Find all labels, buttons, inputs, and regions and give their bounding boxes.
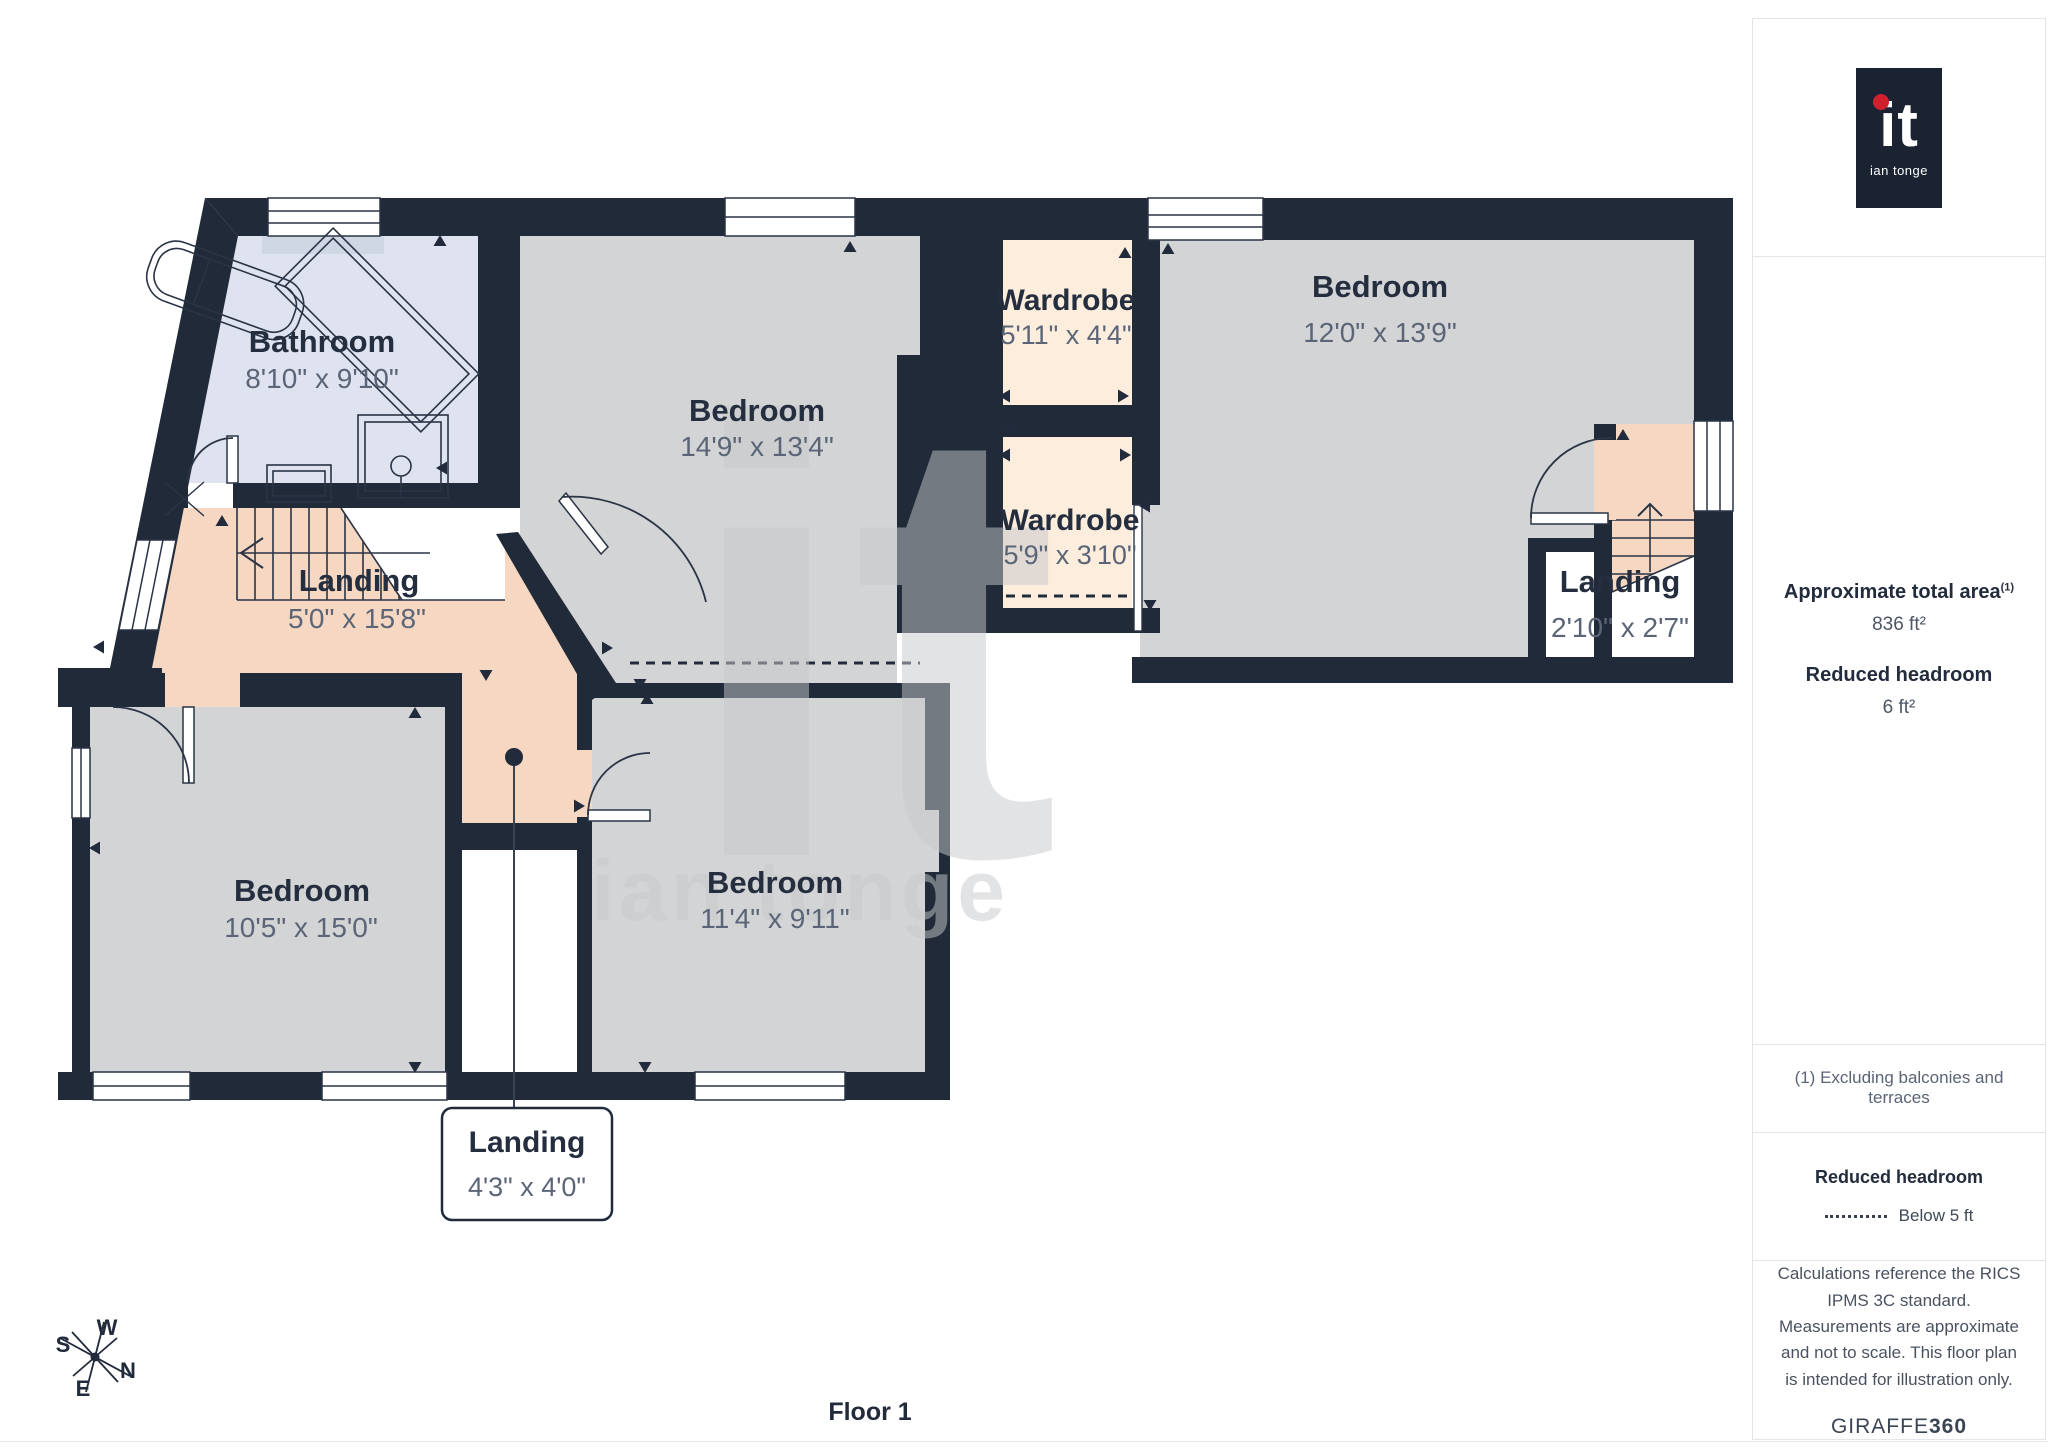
doorway-strip xyxy=(1140,505,1160,657)
label-bedroom-left: Bedroom xyxy=(234,873,370,908)
info-sidebar: it ian tonge Approximate total area(1) 8… xyxy=(1752,18,2046,1440)
brand-number: 360 xyxy=(1929,1415,1967,1438)
total-area-title-text: Approximate total area xyxy=(1784,581,2001,603)
window-bathroom-top xyxy=(268,198,380,236)
floor-label: Floor 1 xyxy=(828,1398,911,1426)
total-area-title: Approximate total area(1) xyxy=(1784,581,2014,604)
window-bedroom-left-side xyxy=(72,748,90,818)
dims-wardrobe-a: 5'11" x 4'4" xyxy=(1000,320,1131,350)
legend-item-label: Below 5 ft xyxy=(1899,1206,1974,1226)
label-bedroom-mid: Bedroom xyxy=(707,865,843,900)
label-bathroom: Bathroom xyxy=(249,324,395,359)
dims-landing-small: 4'3" x 4'0" xyxy=(468,1172,586,1202)
total-area-value: 836 ft² xyxy=(1872,614,1926,636)
logo-red-dot-icon xyxy=(1873,94,1889,110)
brand-name: GIRAFFE xyxy=(1831,1415,1929,1438)
label-landing-main: Landing xyxy=(299,563,420,598)
label-bedroom-main: Bedroom xyxy=(689,393,825,428)
dims-bedroom-mid: 11'4" x 9'11" xyxy=(700,903,849,934)
headroom-title: Reduced headroom xyxy=(1806,664,1993,687)
label-bedroom-right: Bedroom xyxy=(1312,269,1448,304)
dims-bedroom-right: 12'0" x 13'9" xyxy=(1303,317,1457,348)
floorplan-page: it ian tonge Bathroom 8'10" x 9'10" Bedr… xyxy=(0,0,2048,1448)
legend-title: Reduced headroom xyxy=(1815,1167,1983,1188)
dims-bathroom: 8'10" x 9'10" xyxy=(245,363,399,394)
label-wardrobe-b: Wardrobe xyxy=(1001,504,1140,537)
footnote-section: (1) Excluding balconies and terraces xyxy=(1753,1044,2045,1133)
window-bedroom-right-top xyxy=(1148,198,1263,240)
label-wardrobe-a: Wardrobe xyxy=(997,284,1136,317)
disclaimer-text: Calculations reference the RICS IPMS 3C … xyxy=(1775,1261,2023,1393)
label-landing-right: Landing xyxy=(1560,564,1681,599)
dims-bedroom-left: 10'5" x 15'0" xyxy=(224,912,378,943)
dotted-line-icon xyxy=(1825,1215,1887,1218)
dims-landing-right: 2'10" x 2'7" xyxy=(1551,612,1689,643)
total-area-note-marker: (1) xyxy=(2001,582,2014,594)
agency-logo: it ian tonge xyxy=(1856,68,1942,208)
compass-w: W xyxy=(97,1315,118,1340)
window-right-wall xyxy=(1694,421,1733,511)
window-bedroom-main-top xyxy=(725,198,855,236)
window-bedroom-mid-bottom xyxy=(695,1072,845,1100)
dims-landing-main: 5'0" x 15'8" xyxy=(288,603,426,634)
logo-section: it ian tonge xyxy=(1753,19,2045,256)
logo-name: ian tonge xyxy=(1870,163,1928,178)
area-section: Approximate total area(1) 836 ft² Reduce… xyxy=(1753,256,2045,1043)
dims-wardrobe-b: 5'9" x 3'10" xyxy=(1003,540,1136,570)
bottom-divider xyxy=(0,1441,2048,1442)
legend-section: Reduced headroom Below 5 ft xyxy=(1753,1132,2045,1260)
headroom-value: 6 ft² xyxy=(1883,697,1916,719)
footnote-text: (1) Excluding balconies and terraces xyxy=(1753,1068,2045,1108)
window-bedroom-left-bottom-2 xyxy=(322,1072,447,1100)
compass-n: N xyxy=(120,1358,136,1383)
window-bedroom-left-bottom-1 xyxy=(93,1072,190,1100)
brand-mark: GIRAFFE360 xyxy=(1831,1415,1967,1439)
compass-e: E xyxy=(76,1376,91,1401)
label-landing-small: Landing xyxy=(469,1126,586,1159)
disclaimer-section: Calculations reference the RICS IPMS 3C … xyxy=(1753,1260,2045,1439)
compass-s: S xyxy=(56,1332,71,1357)
floorplan-canvas: it ian tonge Bathroom 8'10" x 9'10" Bedr… xyxy=(0,0,2048,1448)
dims-bedroom-main: 14'9" x 13'4" xyxy=(680,431,834,462)
compass-rose: W S N E xyxy=(56,1315,136,1401)
